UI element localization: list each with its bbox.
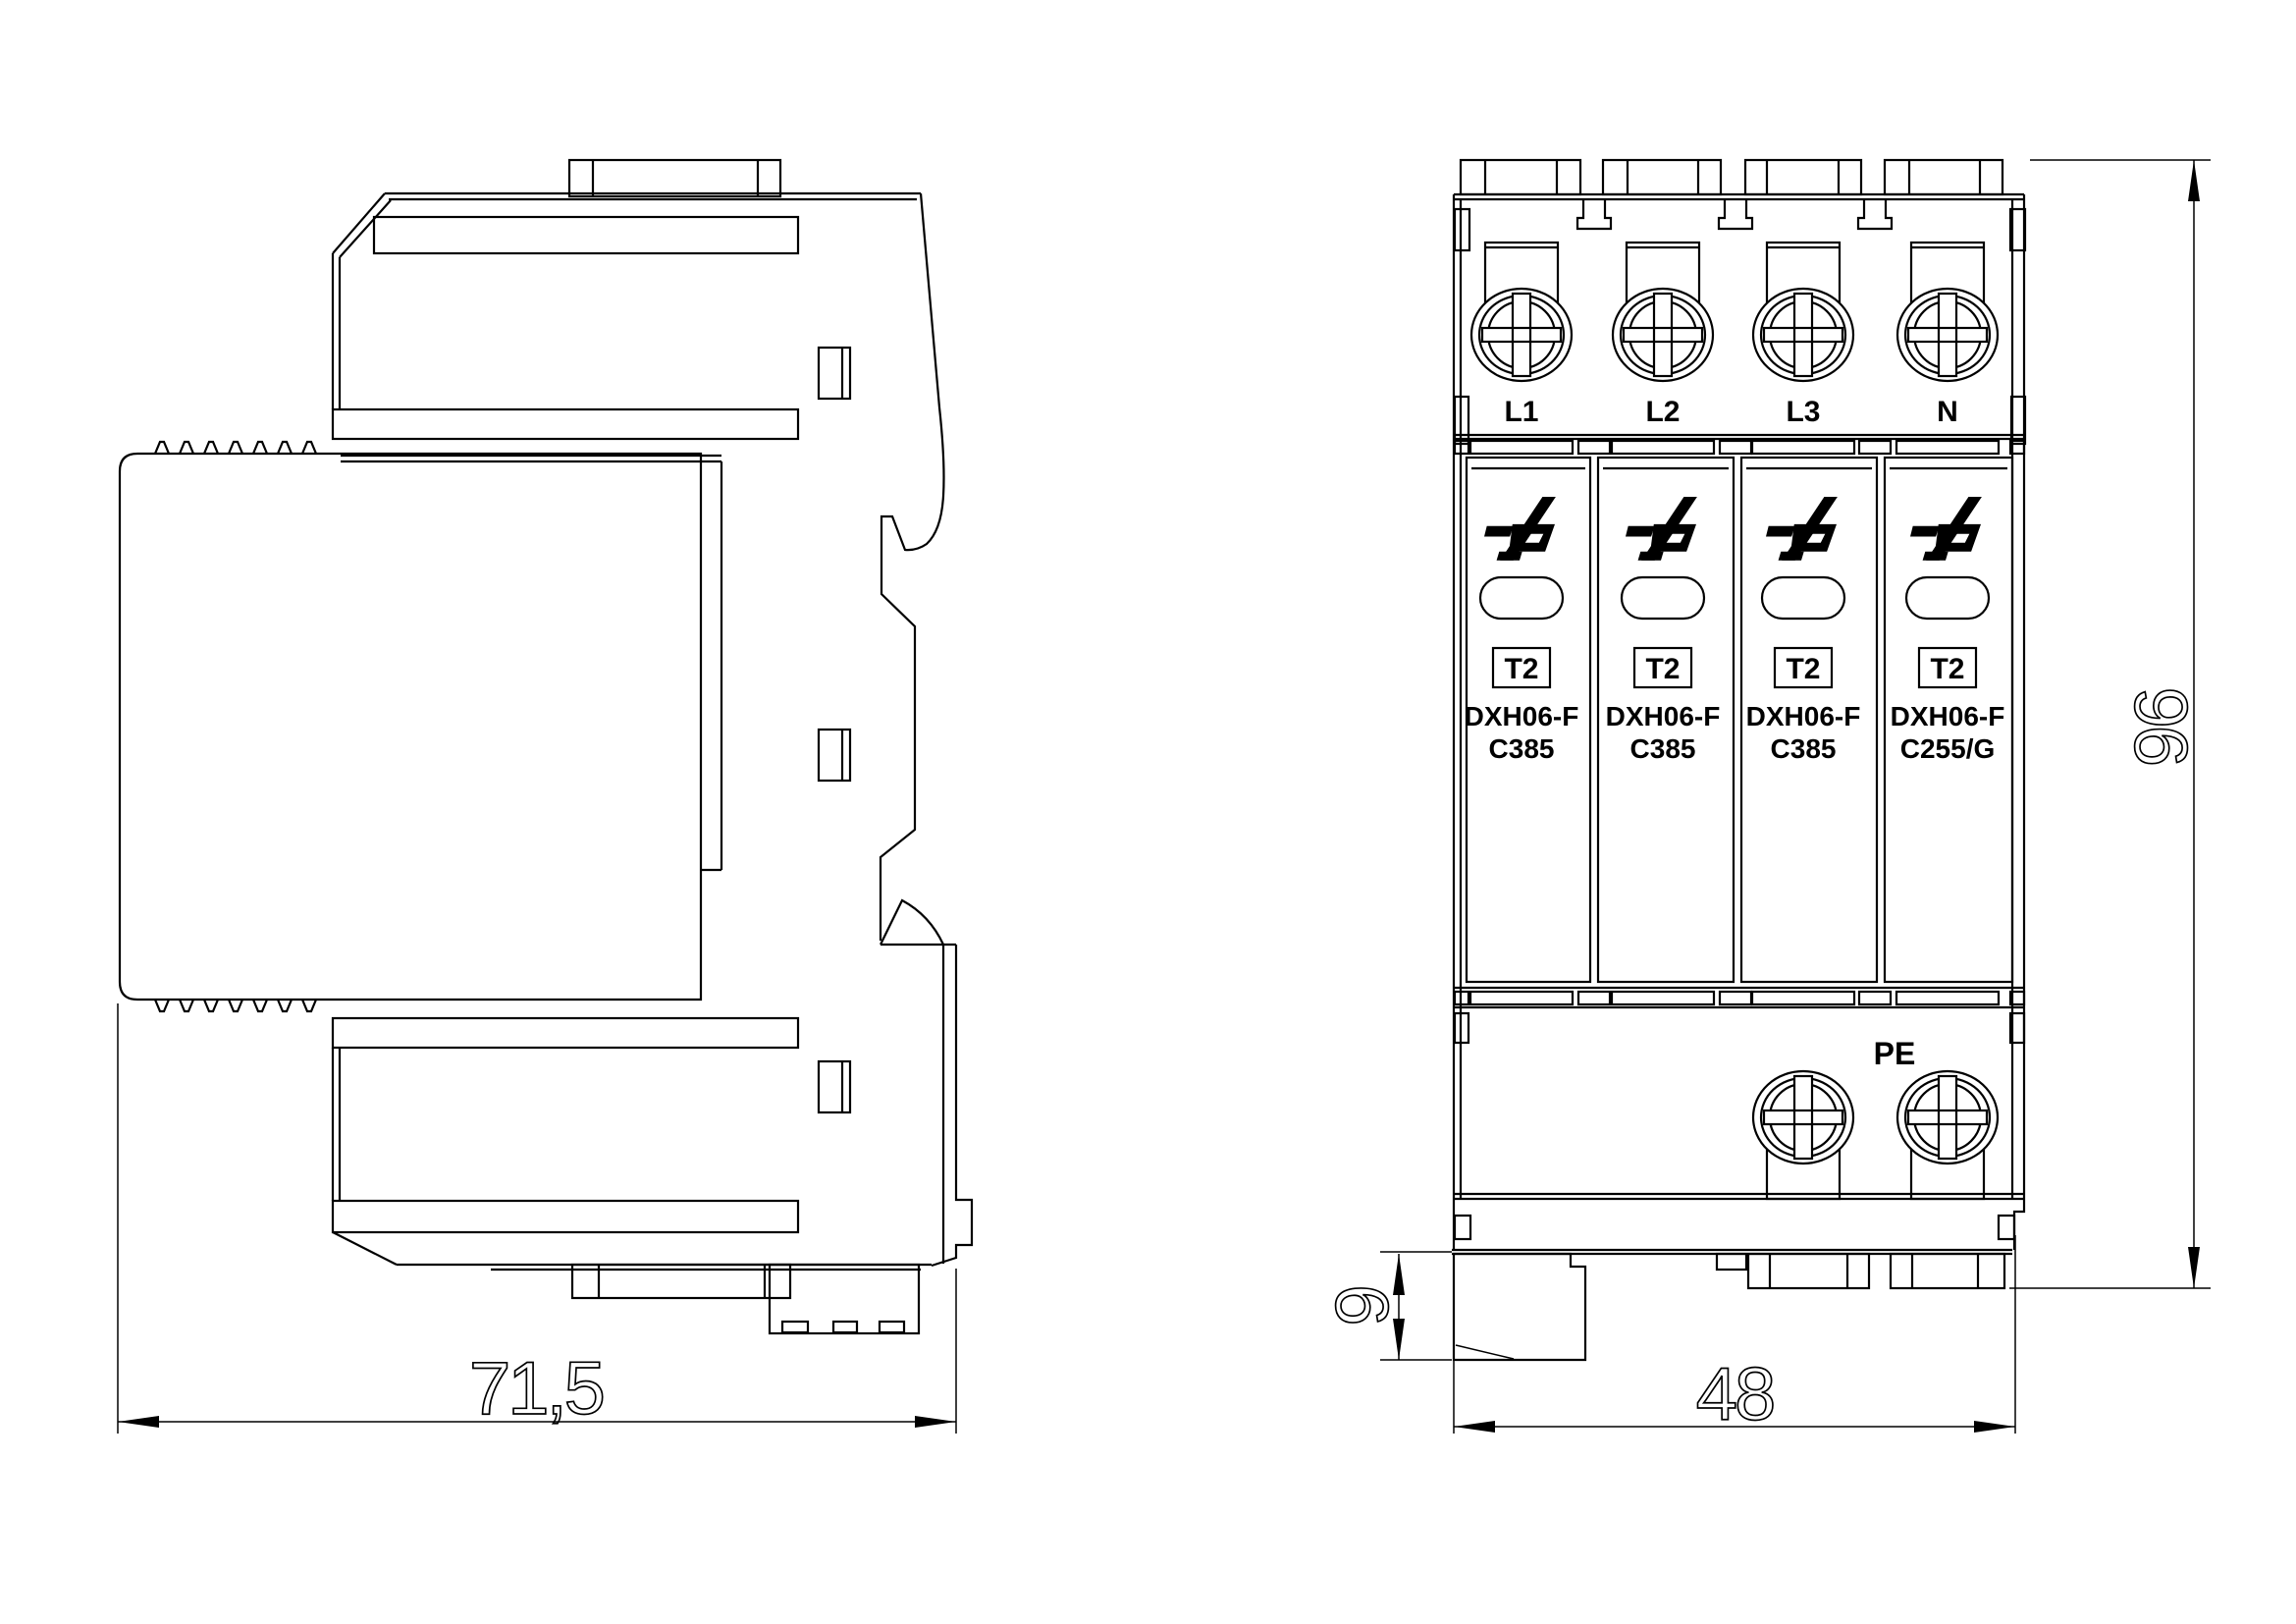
phillips-screw-icon-l2 xyxy=(1613,289,1713,381)
technical-drawing-canvas: 71,5 xyxy=(0,0,2296,1624)
dimension-foot-9: 9 xyxy=(1321,1252,1452,1360)
brand-logo-icon xyxy=(1626,497,1697,561)
arrowhead-left xyxy=(118,1416,159,1428)
module-3: T2 DXH06-F C385 xyxy=(1741,458,1877,982)
module-type-label: T2 xyxy=(1930,653,1964,685)
module-2: T2 DXH06-F C385 xyxy=(1598,458,1734,982)
side-top-tab xyxy=(569,160,780,196)
bottom-mid-tab xyxy=(1717,1254,1746,1270)
side-width-dimension-label: 71,5 xyxy=(469,1347,604,1431)
terminal-label-l1: L1 xyxy=(1504,396,1538,428)
status-indicator-window xyxy=(1480,577,1563,619)
side-label-recess xyxy=(374,217,798,253)
arrowhead-up xyxy=(2188,160,2200,201)
module-4: T2 DXH06-F C255/G xyxy=(1885,458,2012,982)
foot-dimension-label: 9 xyxy=(1321,1287,1405,1326)
module-code-label: C385 xyxy=(1630,733,1696,764)
din-clip-foot xyxy=(1454,1254,1585,1360)
phillips-screw-icon-l1 xyxy=(1471,289,1572,381)
phillips-screw-icon-l3 xyxy=(1753,289,1853,381)
side-upper-band xyxy=(333,409,798,439)
module-model-label: DXH06-F xyxy=(1891,701,2005,731)
module-model-label: DXH06-F xyxy=(1465,701,1579,731)
dimension-height-96: 96 xyxy=(2009,160,2211,1288)
arrowhead-right xyxy=(1974,1421,2015,1433)
arrowhead-right xyxy=(915,1416,956,1428)
separator-strip-top xyxy=(1455,441,2024,454)
module-1: T2 DXH06-F C385 xyxy=(1465,458,1590,982)
module-type-label: T2 xyxy=(1645,653,1680,685)
dimension-width-71-5: 71,5 xyxy=(118,1003,956,1434)
phillips-screw-icon-pe-1 xyxy=(1753,1071,1853,1164)
side-latch-windows xyxy=(819,348,850,1112)
din-rail-clip-profile xyxy=(881,193,972,1266)
module-type-label: T2 xyxy=(1504,653,1538,685)
brand-logo-icon xyxy=(1910,497,1982,561)
grip-serration-bottom xyxy=(155,1000,316,1011)
terminal-label-l3: L3 xyxy=(1786,396,1820,428)
grip-serration-top xyxy=(155,442,316,454)
arrowhead-left xyxy=(1454,1421,1495,1433)
front-width-dimension-label: 48 xyxy=(1696,1353,1774,1436)
status-indicator-window xyxy=(1762,577,1844,619)
front-pe-terminals: PE xyxy=(1454,1036,2024,1199)
module-model-label: DXH06-F xyxy=(1746,701,1861,731)
bottom-tab-1 xyxy=(1748,1254,1869,1288)
t-slot-3 xyxy=(1858,199,1892,229)
bottom-tab-2 xyxy=(1891,1254,2004,1288)
brand-logo-icon xyxy=(1484,497,1556,561)
side-foot xyxy=(770,1265,919,1333)
arrowhead-down xyxy=(2188,1247,2200,1288)
phillips-screw-icon-n xyxy=(1897,289,1998,381)
status-indicator-window xyxy=(1906,577,1989,619)
terminal-label-l2: L2 xyxy=(1645,396,1680,428)
separator-strip-bottom xyxy=(1454,988,2024,1043)
terminal-label-n: N xyxy=(1937,396,1958,428)
module-code-label: C385 xyxy=(1771,733,1837,764)
module-type-label: T2 xyxy=(1786,653,1820,685)
terminal-label-pe: PE xyxy=(1874,1036,1916,1071)
brand-logo-icon xyxy=(1766,497,1838,561)
dimension-width-48: 48 xyxy=(1454,1235,2015,1436)
front-height-dimension-label: 96 xyxy=(2120,690,2204,768)
module-code-label: C255/G xyxy=(1900,733,1996,764)
side-view: 71,5 xyxy=(118,160,972,1434)
side-upper-housing xyxy=(333,193,921,870)
front-view: L1 L2 L3 N T2 DXH06-F C385 T2 xyxy=(1321,160,2211,1436)
module-model-label: DXH06-F xyxy=(1606,701,1721,731)
module-code-label: C385 xyxy=(1489,733,1555,764)
front-base-plate xyxy=(1452,1216,2014,1360)
status-indicator-window xyxy=(1622,577,1704,619)
phillips-screw-icon-pe-2 xyxy=(1897,1071,1998,1164)
surge-protector-drawing: 71,5 xyxy=(0,0,2296,1624)
t-slot-1 xyxy=(1577,199,1611,229)
front-line-terminals: L1 L2 L3 N xyxy=(1454,243,2024,439)
t-slot-2 xyxy=(1719,199,1752,229)
side-module-block xyxy=(120,442,701,1011)
